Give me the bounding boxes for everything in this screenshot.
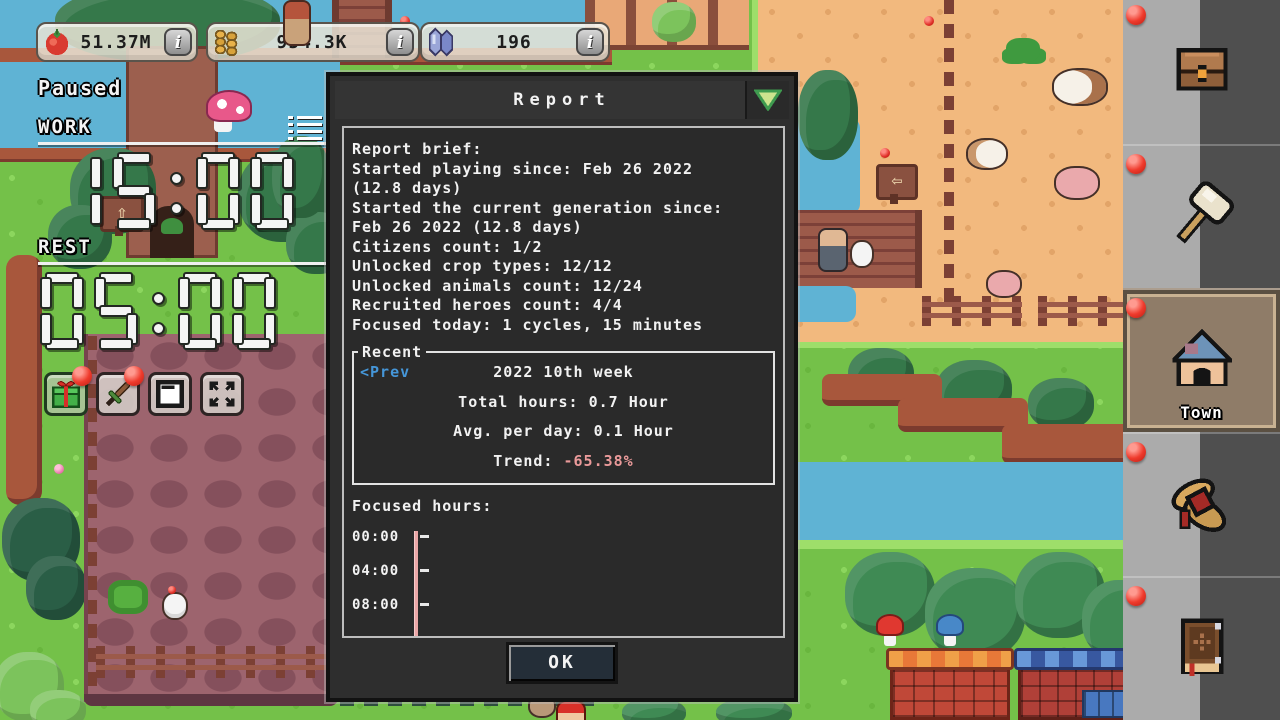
game-screen: ⇧ ⇦ [0, 0, 1280, 720]
info-button[interactable]: i [576, 28, 604, 56]
recent-legend: Recent [358, 343, 426, 361]
work-divider [38, 142, 336, 145]
chart-ylabel: 04:00 [352, 563, 410, 579]
chart-tick [420, 535, 429, 538]
river-bank-fringe [796, 540, 1160, 549]
brief-line: Focused today: 1 cycles, 15 minutes [352, 316, 775, 336]
tomato-icon [42, 27, 72, 57]
brief-line: Recruited heroes count: 4/4 [352, 296, 775, 316]
rest-timer-display [40, 272, 276, 350]
chart-ylabel: 00:00 [352, 529, 410, 545]
red-mushroom-cap [876, 614, 904, 636]
brief-line: Feb 26 2022 (12.8 days) [352, 218, 775, 238]
work-timer-display [58, 152, 294, 230]
sidebar-item-hammer[interactable] [1123, 144, 1280, 288]
sidebar-item-book[interactable] [1123, 576, 1280, 720]
field-edge [84, 694, 338, 706]
dialog-scroll-area[interactable]: Report brief: Started playing since: Feb… [342, 126, 785, 638]
clover-patch [1006, 38, 1040, 62]
resource-value: 51.37M [72, 32, 160, 53]
dialog-title: Report [335, 81, 789, 119]
tree [1028, 378, 1094, 430]
recent-section: Recent <Prev 2022 10th week Total hours:… [352, 343, 775, 485]
pink-mushroom-cap [206, 90, 252, 122]
pen-fence [1038, 296, 1134, 326]
hammer-icon [1168, 180, 1236, 248]
brief-line: Started the current generation since: [352, 199, 775, 219]
rest-divider [38, 262, 336, 265]
notification-dot [1126, 5, 1146, 25]
brief-line: (12.8 days) [352, 179, 775, 199]
pig [1054, 166, 1100, 200]
crop-plant [108, 580, 148, 614]
resource-value: 196 [456, 32, 572, 53]
info-button[interactable]: i [164, 28, 192, 56]
bush [652, 2, 696, 42]
market-stall-body [890, 662, 1010, 720]
window-icon [153, 377, 187, 411]
resource-pill-coins: 954.3K i [206, 22, 420, 62]
brief-line: Started playing since: Feb 26 2022 [352, 160, 775, 180]
fullscreen-icon [205, 377, 239, 411]
forest-cluster [925, 568, 1025, 660]
ok-button[interactable]: OK [506, 642, 618, 684]
brief-line: Report brief: [352, 140, 775, 160]
blue-mushroom-cap [936, 614, 964, 636]
berry [924, 16, 934, 26]
calf [966, 138, 1008, 170]
resource-value: 954.3K [242, 32, 382, 53]
work-label: WORK [38, 116, 92, 138]
stat-trend: Trend: -65.38% [358, 452, 769, 472]
sidebar-item-town[interactable]: Town [1123, 288, 1280, 432]
bridge-character [818, 228, 848, 272]
dialog-header: Report [335, 81, 789, 119]
notification-dot [1126, 442, 1146, 462]
rest-label: REST [38, 236, 92, 258]
cow [1052, 68, 1108, 106]
brief-line: Citizens count: 1/2 [352, 238, 775, 258]
stat-avg-per-day: Avg. per day: 0.1 Hour [358, 422, 769, 442]
pen-fence [922, 296, 1022, 326]
piglet [986, 270, 1022, 298]
resource-pill-tomatoes: 51.37M i [36, 22, 198, 62]
sidebar: Town [1123, 0, 1280, 720]
notification-dot [1126, 586, 1146, 606]
wall-character [283, 0, 311, 46]
sidebar-item-bundle[interactable] [1123, 432, 1280, 576]
report-dialog: Report Report brief: Started playing sin… [326, 72, 798, 702]
coins-icon [212, 27, 242, 57]
collapse-button[interactable] [745, 81, 789, 119]
fullscreen-button[interactable] [200, 372, 244, 416]
field-fence-bottom [96, 646, 332, 678]
notification-dot [1126, 154, 1146, 174]
market-stall-awning [886, 648, 1014, 670]
chart-y-axis [414, 531, 418, 639]
berry [880, 148, 890, 158]
sidebar-item-label: Town [1123, 403, 1280, 422]
field-fence-mid [944, 0, 954, 310]
chart-tick [420, 569, 429, 572]
river-band [796, 462, 1160, 544]
brief-line: Unlocked animals count: 12/24 [352, 277, 775, 297]
bush [30, 690, 86, 720]
pine-tree [26, 556, 86, 620]
bundle-icon [1168, 468, 1236, 536]
notification-dot [72, 366, 92, 386]
blue-crates [1082, 690, 1126, 718]
bush [798, 70, 858, 160]
player-character [556, 700, 586, 720]
cliff-strip-left [6, 255, 42, 505]
market-stall2-awning [1014, 648, 1134, 670]
book-icon [1168, 612, 1236, 680]
brief-line: Unlocked crop types: 12/12 [352, 257, 775, 277]
task-list-icon[interactable] [288, 112, 322, 142]
week-title: 2022 10th week [358, 363, 769, 383]
signpost-leg [890, 194, 898, 204]
chicken-comb [168, 586, 176, 594]
chart-title: Focused hours: [352, 497, 775, 517]
focused-hours-chart: 00:00 04:00 08:00 [352, 527, 775, 639]
notification-dot [124, 366, 144, 386]
sidebar-item-chest[interactable] [1123, 0, 1280, 144]
window-button[interactable] [148, 372, 192, 416]
stat-total-hours: Total hours: 0.7 Hour [358, 393, 769, 413]
town-icon [1168, 324, 1236, 392]
pause-status: Paused [38, 76, 122, 100]
chicken [850, 240, 874, 268]
prev-week-link[interactable]: <Prev [360, 363, 410, 381]
chest-icon [1168, 35, 1236, 103]
notification-dot [1126, 298, 1146, 318]
crystals-icon [426, 27, 456, 57]
info-button[interactable]: i [386, 28, 414, 56]
flower-pink [54, 464, 64, 474]
chicken [162, 592, 188, 620]
triangle-down-icon [754, 89, 782, 111]
chart-ylabel: 08:00 [352, 597, 410, 613]
chart-tick [420, 603, 429, 606]
resource-pill-gems: 196 i [420, 22, 610, 62]
